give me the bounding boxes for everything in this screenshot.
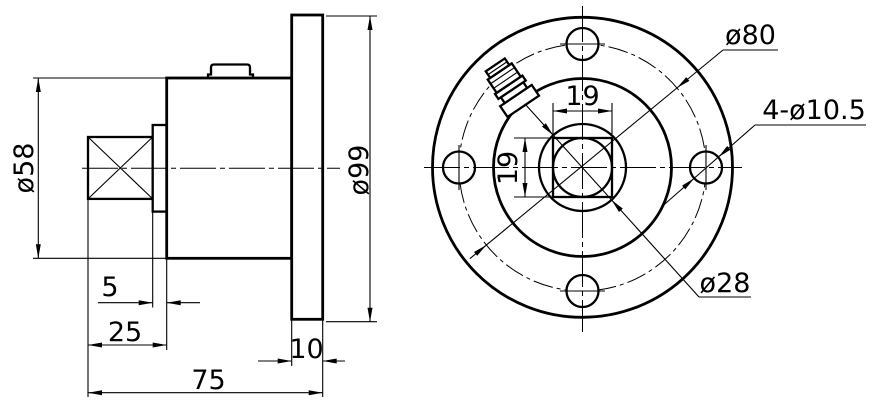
arrowhead (677, 77, 689, 88)
dim-label-bore: ø28 (700, 268, 751, 299)
arrowhead (309, 390, 323, 395)
connector (480, 54, 539, 117)
arrowhead (368, 16, 373, 30)
dim-label-shaft-length: 25 (108, 317, 142, 348)
dim-flange-thickness: 10 (258, 334, 345, 365)
side-view-part-outline (82, 15, 340, 319)
technical-drawing: ø58 ø99 5 (0, 0, 872, 404)
dim-label-flange-thickness: 10 (289, 334, 323, 365)
arrowhead (153, 343, 167, 348)
arrowhead (139, 300, 153, 305)
drawing-canvas: ø58 ø99 5 (0, 0, 872, 404)
arrowhead (682, 178, 694, 189)
side-view: ø58 ø99 5 (9, 15, 377, 397)
knob-outline (208, 65, 253, 79)
dim-label-total-length: 75 (191, 365, 225, 396)
dim-label-bolt-circle: ø80 (725, 20, 776, 51)
dim-step-length: 5 (98, 272, 200, 305)
dim-shaft-length: 25 (88, 317, 167, 348)
leader-line (661, 125, 755, 207)
arrowhead (474, 245, 486, 256)
dim-line-bore (516, 94, 699, 297)
arrowhead (598, 109, 612, 114)
dim-label-step-length: 5 (101, 272, 118, 303)
dim-label-square-height: 19 (493, 151, 524, 185)
dim-total-length: 75 (88, 365, 323, 396)
arrowhead (167, 300, 181, 305)
dim-flange-diameter: ø99 (326, 16, 377, 322)
front-view: ø80 4-ø10.5 ø28 19 (424, 6, 866, 332)
flange-outline (292, 15, 323, 319)
dim-label-square-width: 19 (565, 81, 599, 112)
arrowhead (36, 78, 41, 92)
dim-label-flange-diameter: ø99 (344, 145, 375, 196)
dim-label-bolt-holes: 4-ø10.5 (762, 95, 866, 126)
arrowhead (368, 308, 373, 322)
arrowhead (523, 138, 528, 152)
arrowhead (88, 343, 102, 348)
dim-bolt-holes: 4-ø10.5 (661, 95, 866, 207)
dim-label-body-diameter: ø58 (9, 143, 40, 194)
arrowhead (323, 359, 337, 364)
arrowhead (718, 146, 730, 157)
arrowhead (88, 390, 102, 395)
arrowhead (36, 244, 41, 258)
